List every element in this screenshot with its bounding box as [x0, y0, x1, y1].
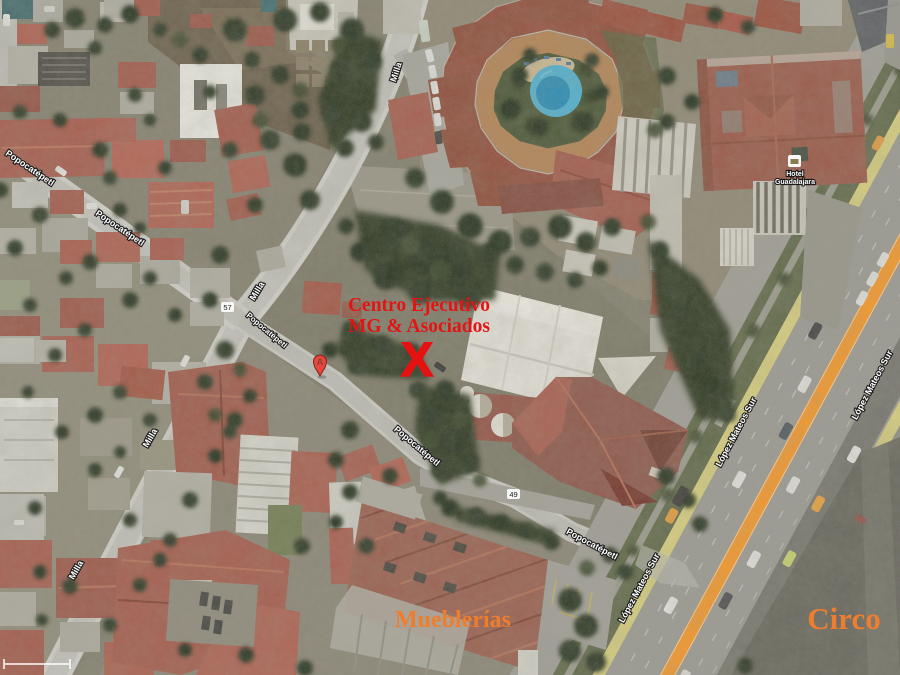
- svg-text:57: 57: [223, 303, 231, 312]
- svg-text:X: X: [401, 334, 433, 387]
- svg-text:Circo: Circo: [807, 601, 880, 636]
- svg-text:Centro Ejecutivo: Centro Ejecutivo: [348, 295, 490, 316]
- svg-text:49: 49: [509, 490, 517, 499]
- svg-text:Guadalajara: Guadalajara: [775, 179, 815, 186]
- svg-text:A: A: [317, 357, 324, 367]
- svg-text:Hotel: Hotel: [786, 171, 804, 178]
- svg-text:Mueblerías: Mueblerías: [395, 607, 511, 633]
